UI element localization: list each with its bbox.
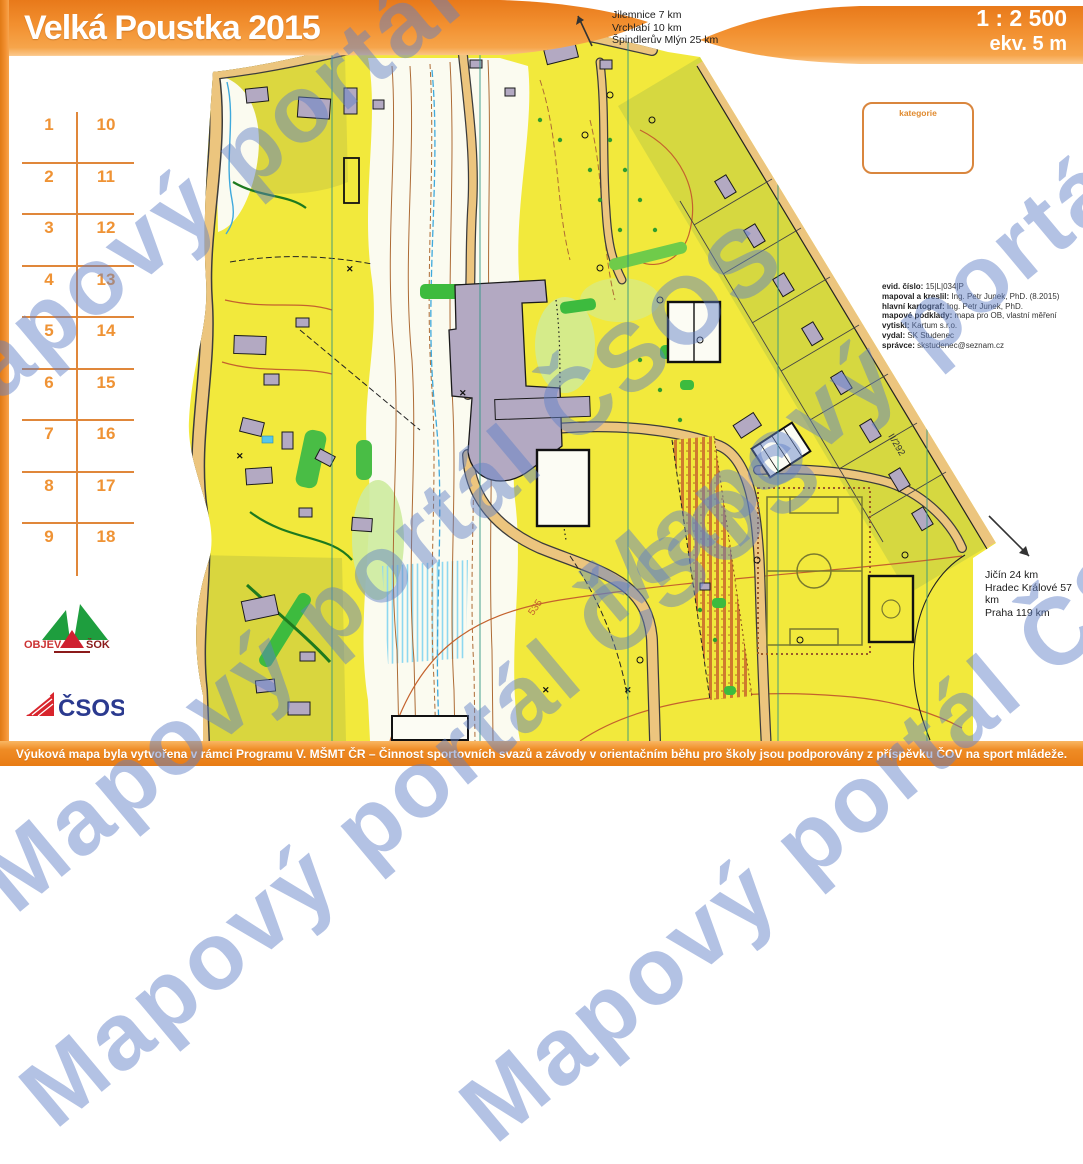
credit-line: hlavní kartograf: Ing. Petr Junek, PhD. (882, 302, 1082, 312)
map-pool (262, 436, 273, 443)
control-cell: 16 (78, 421, 134, 473)
scale-value: 1 : 2 500 (976, 5, 1067, 31)
control-cell: 7 (22, 421, 78, 473)
credit-line: vytiskl: Kartum s.r.o. (882, 321, 1082, 331)
credit-line: správce: skstudenec@seznam.cz (882, 341, 1082, 351)
credit-line: mapové podklady: mapa pro OB, vlastní mě… (882, 311, 1082, 321)
logo-sok-text: ŠOK (86, 638, 110, 651)
footer-bar: Výuková mapa byla vytvořena v rámci Prog… (0, 741, 1083, 766)
control-cell: 8 (22, 473, 78, 525)
credit-line: evid. číslo: 15|L|034|P (882, 282, 1082, 292)
kategorie-label: kategorie (864, 108, 972, 118)
control-cell: 2 (22, 164, 78, 216)
csos-logo: ČSOS (24, 686, 124, 731)
control-card-table: 1 10 2 11 3 12 4 13 5 14 6 15 7 16 8 17 … (22, 112, 134, 576)
control-cell: 17 (78, 473, 134, 525)
control-cell: 15 (78, 370, 134, 422)
control-cell: 10 (78, 112, 134, 164)
control-cell: 14 (78, 318, 134, 370)
directions-top: Jilemnice 7 km Vrchlabí 10 km Špindlerův… (612, 9, 718, 47)
control-cell: 13 (78, 267, 134, 319)
direction-line: Praha 119 km (985, 607, 1083, 620)
csos-text: ČSOS (58, 694, 124, 722)
directions-bottom: Jičín 24 km Hradec Králové 57 km Praha 1… (985, 569, 1083, 619)
control-cell: 1 (22, 112, 78, 164)
svg-text:✕: ✕ (542, 685, 550, 695)
direction-line: Jičín 24 km (985, 569, 1083, 582)
left-orange-stripe (0, 0, 9, 766)
scale-block: 1 : 2 500 ekv. 5 m (976, 5, 1067, 57)
svg-text:✕: ✕ (236, 451, 244, 461)
svg-text:✕: ✕ (459, 388, 467, 398)
csos-sail-icon (26, 692, 54, 716)
north-direction-arrow-icon (570, 8, 604, 50)
svg-text:✕: ✕ (346, 264, 354, 274)
control-cell: 12 (78, 215, 134, 267)
credit-line: mapoval a kreslil: Ing. Petr Junek, PhD.… (882, 292, 1082, 302)
control-cell: 18 (78, 524, 134, 576)
direction-line: Hradec Králové 57 km (985, 582, 1083, 607)
small-pitch (869, 576, 913, 642)
objev-sok-logo: OBJEV ŠOK (24, 596, 116, 665)
footer-text: Výuková mapa byla vytvořena v rámci Prog… (16, 747, 1067, 761)
direction-line: Jilemnice 7 km (612, 9, 718, 22)
control-cell: 6 (22, 370, 78, 422)
credit-line: vydal: SK Studenec (882, 331, 1082, 341)
control-cell: 4 (22, 267, 78, 319)
control-cell: 3 (22, 215, 78, 267)
south-direction-arrow-icon (985, 512, 1041, 566)
credits-block: evid. číslo: 15|L|034|P mapoval a kresli… (882, 282, 1082, 351)
direction-line: Špindlerův Mlýn 25 km (612, 34, 718, 47)
logo-triangle-right (74, 604, 108, 640)
control-cell: 11 (78, 164, 134, 216)
logo-triangle-left (42, 610, 70, 640)
logo-objev-text: OBJEV (24, 639, 62, 651)
direction-line: Vrchlabí 10 km (612, 22, 718, 35)
control-cell: 9 (22, 524, 78, 576)
svg-text:✕: ✕ (818, 144, 826, 154)
kategorie-box: kategorie (862, 102, 974, 174)
control-cell: 5 (22, 318, 78, 370)
equidistance-value: ekv. 5 m (976, 31, 1067, 57)
map-title: Velká Poustka 2015 (24, 9, 320, 48)
